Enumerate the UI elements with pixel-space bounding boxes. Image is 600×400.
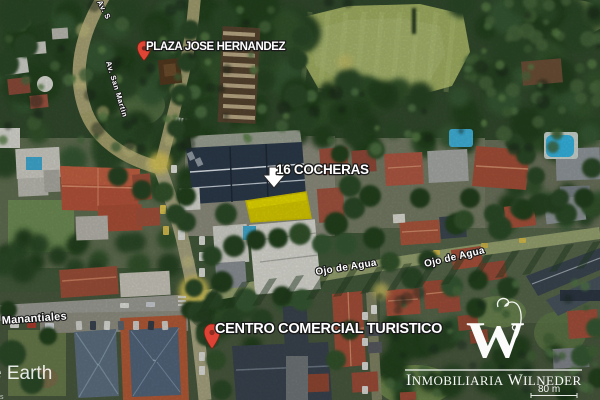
svg-text:W: W — [466, 312, 525, 369]
svg-text:e Earth: e Earth — [0, 363, 52, 384]
svg-text:CENTRO COMERCIAL TURISTICO: CENTRO COMERCIAL TURISTICO — [215, 321, 442, 337]
svg-text:PLAZA JOSE HERNANDEZ: PLAZA JOSE HERNANDEZ — [146, 41, 286, 53]
svg-text:s: s — [0, 394, 4, 400]
svg-text:16 COCHERAS: 16 COCHERAS — [276, 162, 369, 177]
svg-text:80 m: 80 m — [538, 384, 560, 395]
